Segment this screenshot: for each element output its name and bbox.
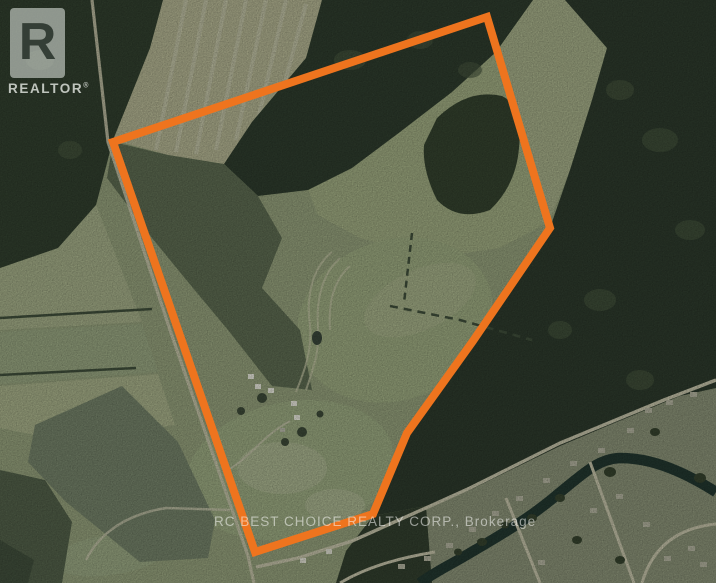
satellite-map — [0, 0, 716, 583]
realtor-r-icon: R — [10, 8, 65, 78]
brokerage-watermark: RC BEST CHOICE REALTY CORP., Brokerage — [214, 514, 536, 529]
photo-grain-overlay — [0, 0, 716, 583]
listing-aerial-photo: R REALTOR® RC BEST CHOICE REALTY CORP., … — [0, 0, 716, 583]
realtor-logo-label: REALTOR® — [8, 81, 90, 96]
realtor-r-letter: R — [19, 16, 57, 68]
realtor-logo: R REALTOR® — [10, 8, 90, 96]
registered-trademark-icon: ® — [83, 83, 88, 90]
